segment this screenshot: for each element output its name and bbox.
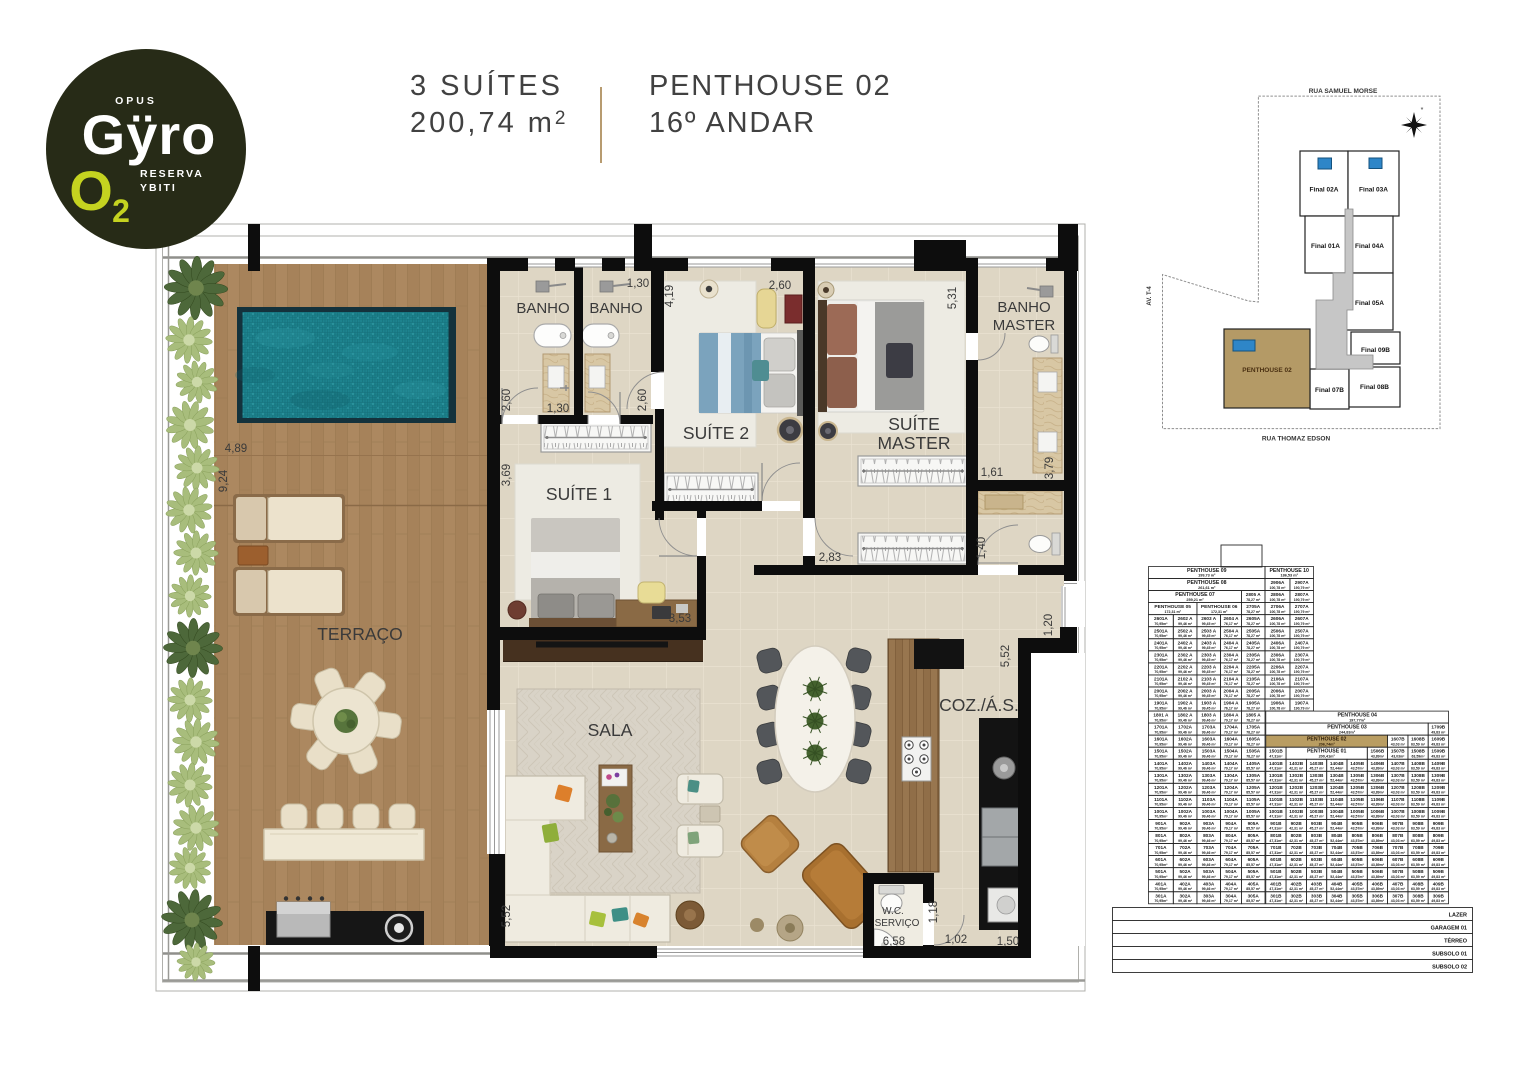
svg-text:804A: 804A — [1225, 833, 1237, 838]
svg-text:70,95m²: 70,95m² — [1154, 875, 1168, 879]
svg-text:902B: 902B — [1291, 821, 1303, 826]
svg-text:45,27 m²: 45,27 m² — [1309, 815, 1324, 819]
svg-text:49,83 m²: 49,83 m² — [1431, 791, 1446, 795]
svg-text:303A: 303A — [1203, 893, 1215, 898]
svg-text:45,27 m²: 45,27 m² — [1309, 863, 1324, 867]
svg-text:807B: 807B — [1392, 833, 1404, 838]
svg-text:*: * — [1421, 107, 1424, 114]
svg-text:190,79 m²: 190,79 m² — [1294, 682, 1311, 686]
svg-text:708B: 708B — [1412, 845, 1424, 850]
svg-text:Gÿro: Gÿro — [82, 103, 217, 166]
svg-text:9,24: 9,24 — [218, 469, 230, 492]
svg-text:2406A: 2406A — [1271, 640, 1285, 645]
svg-text:405A: 405A — [1248, 881, 1260, 886]
svg-text:1309B: 1309B — [1431, 773, 1445, 778]
svg-text:99,46 m²: 99,46 m² — [1202, 839, 1217, 843]
svg-text:63,59 m²: 63,59 m² — [1411, 887, 1426, 891]
svg-text:1604A: 1604A — [1224, 737, 1238, 742]
svg-text:63,59 m²: 63,59 m² — [1411, 791, 1426, 795]
svg-text:99,46 m²: 99,46 m² — [1178, 803, 1193, 807]
svg-text:99,46 m²: 99,46 m² — [1178, 779, 1193, 783]
svg-text:52,44m²: 52,44m² — [1330, 815, 1344, 819]
svg-text:2303 A: 2303 A — [1201, 652, 1217, 657]
svg-text:2405A: 2405A — [1246, 640, 1260, 645]
svg-text:2306A: 2306A — [1271, 652, 1285, 657]
svg-text:703B: 703B — [1311, 845, 1323, 850]
svg-text:43,57m²: 43,57m² — [1351, 815, 1365, 819]
svg-text:49,83 m²: 49,83 m² — [1431, 851, 1446, 855]
svg-text:803A: 803A — [1203, 833, 1215, 838]
svg-text:70,95m²: 70,95m² — [1154, 718, 1168, 722]
svg-text:78,27 m²: 78,27 m² — [1246, 670, 1261, 674]
svg-text:45,27 m²: 45,27 m² — [1309, 803, 1324, 807]
svg-text:99,45 m²: 99,45 m² — [1202, 646, 1217, 650]
svg-text:99,46 m²: 99,46 m² — [1178, 887, 1193, 891]
svg-text:305B: 305B — [1352, 893, 1364, 898]
svg-text:43,89m²: 43,89m² — [1371, 827, 1385, 831]
svg-text:Final 01A: Final 01A — [1311, 243, 1340, 250]
svg-text:43,89m²: 43,89m² — [1371, 815, 1385, 819]
svg-text:99,46 m²: 99,46 m² — [1178, 670, 1193, 674]
svg-text:2002 A: 2002 A — [1178, 689, 1194, 694]
svg-text:45,27 m²: 45,27 m² — [1309, 851, 1324, 855]
svg-text:78,27 m²: 78,27 m² — [1246, 718, 1261, 722]
svg-text:GARAGEM 01: GARAGEM 01 — [1431, 926, 1467, 932]
svg-text:806B: 806B — [1372, 833, 1384, 838]
svg-text:2505A: 2505A — [1246, 628, 1260, 633]
svg-text:1201B: 1201B — [1269, 785, 1283, 790]
svg-text:79,17 m²: 79,17 m² — [1224, 754, 1239, 758]
svg-text:47,31m²: 47,31m² — [1269, 827, 1283, 831]
svg-text:Final 03A: Final 03A — [1359, 186, 1388, 193]
svg-text:901B: 901B — [1270, 821, 1282, 826]
svg-text:85,57 m²: 85,57 m² — [1246, 767, 1261, 771]
svg-text:1403B: 1403B — [1310, 761, 1324, 766]
svg-text:43,89m²: 43,89m² — [1371, 863, 1385, 867]
svg-text:78,27 m²: 78,27 m² — [1246, 598, 1261, 602]
svg-text:1204A: 1204A — [1224, 785, 1238, 790]
svg-text:76,17 m²: 76,17 m² — [1224, 682, 1239, 686]
svg-text:70,95m²: 70,95m² — [1154, 622, 1168, 626]
svg-text:200,74 m2: 200,74 m2 — [410, 107, 569, 139]
svg-text:261,61 m²: 261,61 m² — [1198, 586, 1216, 590]
svg-text:100,78 m²: 100,78 m² — [1270, 610, 1287, 614]
svg-text:42,31 m²: 42,31 m² — [1289, 827, 1304, 831]
svg-text:2104 A: 2104 A — [1224, 677, 1240, 682]
svg-text:Final 08B: Final 08B — [1360, 384, 1389, 391]
svg-text:43,57m²: 43,57m² — [1351, 827, 1365, 831]
svg-text:70,95m²: 70,95m² — [1154, 658, 1168, 662]
svg-text:70,95m²: 70,95m² — [1154, 694, 1168, 698]
svg-text:2107A: 2107A — [1295, 677, 1309, 682]
svg-text:99,46 m²: 99,46 m² — [1178, 754, 1193, 758]
svg-text:1804 A: 1804 A — [1224, 713, 1240, 718]
svg-text:70,95m²: 70,95m² — [1154, 803, 1168, 807]
svg-text:601A: 601A — [1155, 857, 1167, 862]
svg-text:RESERVA: RESERVA — [140, 168, 204, 180]
svg-text:2601A: 2601A — [1154, 616, 1168, 621]
svg-text:99,46 m²: 99,46 m² — [1202, 827, 1217, 831]
svg-text:1001A: 1001A — [1154, 809, 1168, 814]
svg-text:BANHO: BANHO — [589, 300, 642, 317]
svg-text:186,53 m²: 186,53 m² — [1281, 574, 1299, 578]
svg-text:705A: 705A — [1248, 845, 1260, 850]
svg-text:1103A: 1103A — [1202, 797, 1216, 802]
svg-text:47,31m²: 47,31m² — [1269, 791, 1283, 795]
svg-text:1109B: 1109B — [1432, 797, 1446, 802]
svg-text:SUBSOLO 02: SUBSOLO 02 — [1432, 965, 1467, 971]
svg-text:52,44m²: 52,44m² — [1330, 875, 1344, 879]
svg-text:2706A: 2706A — [1271, 604, 1285, 609]
svg-text:78,27 m²: 78,27 m² — [1246, 622, 1261, 626]
svg-text:190,79 m²: 190,79 m² — [1294, 646, 1311, 650]
svg-text:99,46 m²: 99,46 m² — [1178, 694, 1193, 698]
svg-text:45,27 m²: 45,27 m² — [1309, 839, 1324, 843]
svg-text:85,57 m²: 85,57 m² — [1246, 839, 1261, 843]
svg-text:2: 2 — [112, 193, 130, 229]
svg-text:401A: 401A — [1155, 881, 1167, 886]
svg-text:Final 04A: Final 04A — [1355, 243, 1384, 250]
svg-text:99,45 m²: 99,45 m² — [1202, 622, 1217, 626]
svg-text:190,79 m²: 190,79 m² — [1294, 706, 1311, 710]
svg-text:43,57m²: 43,57m² — [1351, 791, 1365, 795]
svg-text:49,83 m²: 49,83 m² — [1431, 887, 1446, 891]
svg-text:99,46 m²: 99,46 m² — [1202, 730, 1217, 734]
svg-text:903B: 903B — [1311, 821, 1323, 826]
svg-text:1507B: 1507B — [1391, 749, 1405, 754]
svg-text:78,27 m²: 78,27 m² — [1246, 742, 1261, 746]
svg-text:403B: 403B — [1311, 881, 1323, 886]
svg-text:85,57 m²: 85,57 m² — [1246, 887, 1261, 891]
svg-text:49,83 m²: 49,83 m² — [1431, 875, 1446, 879]
svg-text:63,59 m²: 63,59 m² — [1411, 851, 1426, 855]
svg-text:79,17 m²: 79,17 m² — [1224, 887, 1239, 891]
svg-text:SUÍTE 1: SUÍTE 1 — [546, 484, 612, 504]
svg-text:1105B: 1105B — [1350, 797, 1364, 802]
svg-text:99,46 m²: 99,46 m² — [1202, 791, 1217, 795]
svg-text:502A: 502A — [1179, 869, 1191, 874]
svg-text:47,31m²: 47,31m² — [1269, 839, 1283, 843]
svg-text:1,18: 1,18 — [928, 901, 940, 923]
svg-text:78,27 m²: 78,27 m² — [1246, 754, 1261, 758]
svg-text:49,83 m²: 49,83 m² — [1431, 899, 1446, 903]
svg-text:1008B: 1008B — [1411, 809, 1425, 814]
svg-text:190,79 m²: 190,79 m² — [1294, 634, 1311, 638]
svg-text:1408B: 1408B — [1411, 761, 1425, 766]
svg-text:SERVIÇO: SERVIÇO — [875, 918, 920, 929]
svg-text:43,89m²: 43,89m² — [1371, 851, 1385, 855]
svg-text:1106B: 1106B — [1371, 797, 1385, 802]
svg-text:99,46 m²: 99,46 m² — [1202, 754, 1217, 758]
svg-text:49,83 m²: 49,83 m² — [1431, 767, 1446, 771]
svg-text:76,17 m²: 76,17 m² — [1224, 694, 1239, 698]
svg-text:70,95m²: 70,95m² — [1154, 791, 1168, 795]
svg-text:607B: 607B — [1392, 857, 1404, 862]
svg-text:2205A: 2205A — [1246, 664, 1260, 669]
svg-text:2807A: 2807A — [1295, 592, 1309, 597]
svg-text:1704A: 1704A — [1224, 725, 1238, 730]
svg-text:52,44m²: 52,44m² — [1330, 827, 1344, 831]
svg-text:2307A: 2307A — [1295, 652, 1309, 657]
svg-text:1001B: 1001B — [1269, 809, 1283, 814]
svg-text:1709B: 1709B — [1431, 725, 1445, 730]
svg-text:70,95m²: 70,95m² — [1154, 851, 1168, 855]
svg-text:1009B: 1009B — [1431, 809, 1445, 814]
svg-text:79,17 m²: 79,17 m² — [1224, 767, 1239, 771]
svg-text:603B: 603B — [1311, 857, 1323, 862]
svg-text:2502 A: 2502 A — [1178, 628, 1194, 633]
svg-text:99,46 m²: 99,46 m² — [1178, 646, 1193, 650]
svg-text:70,95m²: 70,95m² — [1154, 706, 1168, 710]
svg-text:52,44m²: 52,44m² — [1330, 839, 1344, 843]
svg-text:85,57 m²: 85,57 m² — [1246, 899, 1261, 903]
svg-text:504A: 504A — [1225, 869, 1237, 874]
svg-text:701B: 701B — [1270, 845, 1282, 850]
svg-text:402A: 402A — [1179, 881, 1191, 886]
svg-text:1101A: 1101A — [1154, 797, 1168, 802]
svg-text:2402 A: 2402 A — [1178, 640, 1194, 645]
svg-text:409B: 409B — [1433, 881, 1445, 886]
svg-text:809B: 809B — [1433, 833, 1445, 838]
svg-text:99,46 m²: 99,46 m² — [1178, 730, 1193, 734]
svg-text:63,59 m²: 63,59 m² — [1411, 742, 1426, 746]
svg-text:45,27 m²: 45,27 m² — [1309, 779, 1324, 783]
svg-text:TERRAÇO: TERRAÇO — [317, 624, 403, 644]
svg-text:52,44m²: 52,44m² — [1330, 767, 1344, 771]
svg-text:63,59 m²: 63,59 m² — [1411, 863, 1426, 867]
svg-text:1608B: 1608B — [1411, 737, 1425, 742]
svg-text:63,59 m²: 63,59 m² — [1411, 875, 1426, 879]
svg-text:804B: 804B — [1331, 833, 1343, 838]
svg-text:805B: 805B — [1352, 833, 1364, 838]
svg-text:1102B: 1102B — [1289, 797, 1303, 802]
svg-text:902A: 902A — [1179, 821, 1191, 826]
svg-text:808B: 808B — [1412, 833, 1424, 838]
svg-text:70,95m²: 70,95m² — [1154, 887, 1168, 891]
svg-text:43,03 m²: 43,03 m² — [1391, 839, 1406, 843]
svg-text:100,78 m²: 100,78 m² — [1270, 622, 1287, 626]
svg-text:43,89m²: 43,89m² — [1371, 791, 1385, 795]
svg-text:304A: 304A — [1225, 893, 1237, 898]
svg-text:404A: 404A — [1225, 881, 1237, 886]
svg-text:5,31: 5,31 — [947, 287, 959, 309]
svg-text:99,46 m²: 99,46 m² — [1202, 767, 1217, 771]
svg-text:2304 A: 2304 A — [1224, 652, 1240, 657]
svg-text:2605A: 2605A — [1246, 616, 1260, 621]
svg-text:99,46 m²: 99,46 m² — [1178, 718, 1193, 722]
svg-text:1603A: 1603A — [1202, 737, 1216, 742]
svg-text:2705A: 2705A — [1246, 604, 1260, 609]
svg-text:1607B: 1607B — [1391, 737, 1405, 742]
svg-text:43,03 m²: 43,03 m² — [1391, 875, 1406, 879]
svg-text:1504A: 1504A — [1224, 749, 1238, 754]
svg-text:79,17 m²: 79,17 m² — [1224, 851, 1239, 855]
svg-text:801A: 801A — [1155, 833, 1167, 838]
svg-text:COZ./Á.S.: COZ./Á.S. — [939, 695, 1019, 715]
svg-text:85,57 m²: 85,57 m² — [1246, 851, 1261, 855]
svg-text:1702A: 1702A — [1178, 725, 1192, 730]
svg-text:99,46 m²: 99,46 m² — [1178, 863, 1193, 867]
svg-text:1602A: 1602A — [1178, 737, 1192, 742]
svg-text:43,89m²: 43,89m² — [1371, 779, 1385, 783]
svg-text:79,17 m²: 79,17 m² — [1224, 899, 1239, 903]
svg-text:505B: 505B — [1352, 869, 1364, 874]
svg-text:43,57m²: 43,57m² — [1351, 899, 1365, 903]
svg-text:70,95m²: 70,95m² — [1154, 742, 1168, 746]
svg-text:1,30: 1,30 — [627, 278, 649, 290]
svg-text:4,89: 4,89 — [225, 443, 247, 455]
svg-text:702B: 702B — [1291, 845, 1303, 850]
svg-text:MASTER: MASTER — [878, 433, 951, 453]
svg-text:1105A: 1105A — [1246, 797, 1260, 802]
svg-text:W.C.: W.C. — [882, 906, 904, 917]
svg-text:4,19: 4,19 — [664, 285, 676, 307]
svg-text:Final 07B: Final 07B — [1315, 387, 1344, 394]
svg-text:1401A: 1401A — [1154, 761, 1168, 766]
svg-text:1104A: 1104A — [1224, 797, 1238, 802]
svg-text:707B: 707B — [1392, 845, 1404, 850]
svg-text:1005A: 1005A — [1246, 809, 1260, 814]
svg-text:43,57m²: 43,57m² — [1351, 803, 1365, 807]
svg-text:1509B: 1509B — [1431, 749, 1445, 754]
svg-text:706B: 706B — [1372, 845, 1384, 850]
svg-text:42,31 m²: 42,31 m² — [1289, 851, 1304, 855]
svg-text:2202 A: 2202 A — [1178, 664, 1194, 669]
svg-text:1904 A: 1904 A — [1224, 701, 1240, 706]
svg-text:602B: 602B — [1291, 857, 1303, 862]
svg-text:99,46 m²: 99,46 m² — [1202, 875, 1217, 879]
svg-text:43,89m²: 43,89m² — [1371, 767, 1385, 771]
svg-text:99,46 m²: 99,46 m² — [1178, 706, 1193, 710]
svg-text:602A: 602A — [1179, 857, 1191, 862]
svg-text:172,31 m²: 172,31 m² — [1211, 610, 1228, 614]
svg-text:43,03 m²: 43,03 m² — [1391, 827, 1406, 831]
svg-text:42,31 m²: 42,31 m² — [1289, 887, 1304, 891]
svg-text:SUÍTE: SUÍTE — [888, 414, 940, 434]
svg-text:100,78 m²: 100,78 m² — [1270, 634, 1287, 638]
svg-text:76,17 m²: 76,17 m² — [1224, 622, 1239, 626]
svg-text:100,78 m²: 100,78 m² — [1270, 670, 1287, 674]
svg-text:Final 02A: Final 02A — [1310, 186, 1339, 193]
svg-text:43,57m²: 43,57m² — [1351, 767, 1365, 771]
svg-text:2102 A: 2102 A — [1178, 677, 1194, 682]
svg-text:43,89m²: 43,89m² — [1371, 754, 1385, 758]
svg-text:43,03 m²: 43,03 m² — [1391, 899, 1406, 903]
svg-text:1406B: 1406B — [1370, 761, 1384, 766]
svg-text:1304A: 1304A — [1224, 773, 1238, 778]
svg-text:1203A: 1203A — [1202, 785, 1216, 790]
svg-text:1404B: 1404B — [1330, 761, 1344, 766]
svg-text:99,45 m²: 99,45 m² — [1202, 706, 1217, 710]
svg-text:99,46 m²: 99,46 m² — [1178, 875, 1193, 879]
svg-text:1401B: 1401B — [1269, 761, 1283, 766]
svg-text:52,44m²: 52,44m² — [1330, 803, 1344, 807]
svg-text:47,31m²: 47,31m² — [1269, 899, 1283, 903]
svg-text:45,27 m²: 45,27 m² — [1309, 791, 1324, 795]
svg-text:99,46 m²: 99,46 m² — [1202, 779, 1217, 783]
svg-text:43,57m²: 43,57m² — [1351, 839, 1365, 843]
svg-text:504B: 504B — [1331, 869, 1343, 874]
svg-text:503B: 503B — [1311, 869, 1323, 874]
svg-text:1,61: 1,61 — [981, 467, 1003, 479]
svg-text:2607A: 2607A — [1295, 616, 1309, 621]
svg-text:403A: 403A — [1203, 881, 1215, 886]
svg-text:63,59 m²: 63,59 m² — [1411, 767, 1426, 771]
svg-text:O: O — [69, 159, 113, 222]
svg-text:703A: 703A — [1203, 845, 1215, 850]
svg-text:99,46 m²: 99,46 m² — [1202, 718, 1217, 722]
svg-text:605B: 605B — [1352, 857, 1364, 862]
svg-text:2003 A: 2003 A — [1201, 689, 1217, 694]
svg-text:1503A: 1503A — [1202, 749, 1216, 754]
svg-text:306B: 306B — [1372, 893, 1384, 898]
svg-text:99,46 m²: 99,46 m² — [1202, 851, 1217, 855]
svg-text:1103B: 1103B — [1310, 797, 1324, 802]
svg-text:2004 A: 2004 A — [1224, 689, 1240, 694]
svg-text:79,17 m²: 79,17 m² — [1224, 730, 1239, 734]
svg-text:49,83 m²: 49,83 m² — [1431, 803, 1446, 807]
svg-text:99,45 m²: 99,45 m² — [1202, 658, 1217, 662]
svg-text:601B: 601B — [1270, 857, 1282, 862]
svg-text:99,46 m²: 99,46 m² — [1178, 827, 1193, 831]
svg-text:404B: 404B — [1331, 881, 1343, 886]
svg-text:43,57m²: 43,57m² — [1351, 863, 1365, 867]
svg-text:190,79 m²: 190,79 m² — [1294, 586, 1311, 590]
svg-text:1501B: 1501B — [1269, 749, 1283, 754]
svg-text:197,77m²: 197,77m² — [1349, 718, 1366, 722]
svg-text:RUA THOMAZ EDSON: RUA THOMAZ EDSON — [1262, 436, 1331, 443]
svg-text:803B: 803B — [1311, 833, 1323, 838]
svg-text:3 SUÍTES: 3 SUÍTES — [410, 69, 563, 102]
svg-text:47,31m²: 47,31m² — [1269, 779, 1283, 783]
svg-text:99,45 m²: 99,45 m² — [1202, 634, 1217, 638]
svg-text:47,31m²: 47,31m² — [1269, 851, 1283, 855]
svg-text:1002A: 1002A — [1178, 809, 1192, 814]
svg-text:SUÍTE 2: SUÍTE 2 — [683, 423, 749, 443]
svg-text:903A: 903A — [1203, 821, 1215, 826]
svg-text:2201A: 2201A — [1154, 664, 1168, 669]
svg-text:1101B: 1101B — [1269, 797, 1283, 802]
svg-text:99,46 m²: 99,46 m² — [1178, 851, 1193, 855]
svg-text:1003A: 1003A — [1202, 809, 1216, 814]
svg-text:63,59 m²: 63,59 m² — [1411, 803, 1426, 807]
svg-text:2506A: 2506A — [1271, 628, 1285, 633]
svg-text:MASTER: MASTER — [993, 317, 1056, 334]
svg-text:76,17 m²: 76,17 m² — [1224, 658, 1239, 662]
svg-text:1405A: 1405A — [1246, 761, 1260, 766]
svg-text:49,83 m²: 49,83 m² — [1431, 863, 1446, 867]
svg-text:190,79 m²: 190,79 m² — [1294, 694, 1311, 698]
svg-text:78,27 m²: 78,27 m² — [1246, 694, 1261, 698]
svg-text:42,31 m²: 42,31 m² — [1289, 875, 1304, 879]
svg-text:805A: 805A — [1248, 833, 1260, 838]
svg-text:Final 09B: Final 09B — [1361, 347, 1390, 354]
svg-text:63,59 m²: 63,59 m² — [1411, 899, 1426, 903]
svg-text:43,57m²: 43,57m² — [1351, 875, 1365, 879]
svg-text:904A: 904A — [1225, 821, 1237, 826]
svg-text:100,78 m²: 100,78 m² — [1270, 598, 1287, 602]
svg-text:1007B: 1007B — [1391, 809, 1405, 814]
svg-text:909B: 909B — [1433, 821, 1445, 826]
svg-text:99,46 m²: 99,46 m² — [1202, 742, 1217, 746]
svg-text:43,03 m²: 43,03 m² — [1391, 887, 1406, 891]
svg-text:70,95m²: 70,95m² — [1154, 634, 1168, 638]
svg-text:1305A: 1305A — [1246, 773, 1260, 778]
svg-text:1305B: 1305B — [1350, 773, 1364, 778]
svg-text:1502A: 1502A — [1178, 749, 1192, 754]
svg-text:2207A: 2207A — [1295, 664, 1309, 669]
svg-text:99,46 m²: 99,46 m² — [1202, 899, 1217, 903]
